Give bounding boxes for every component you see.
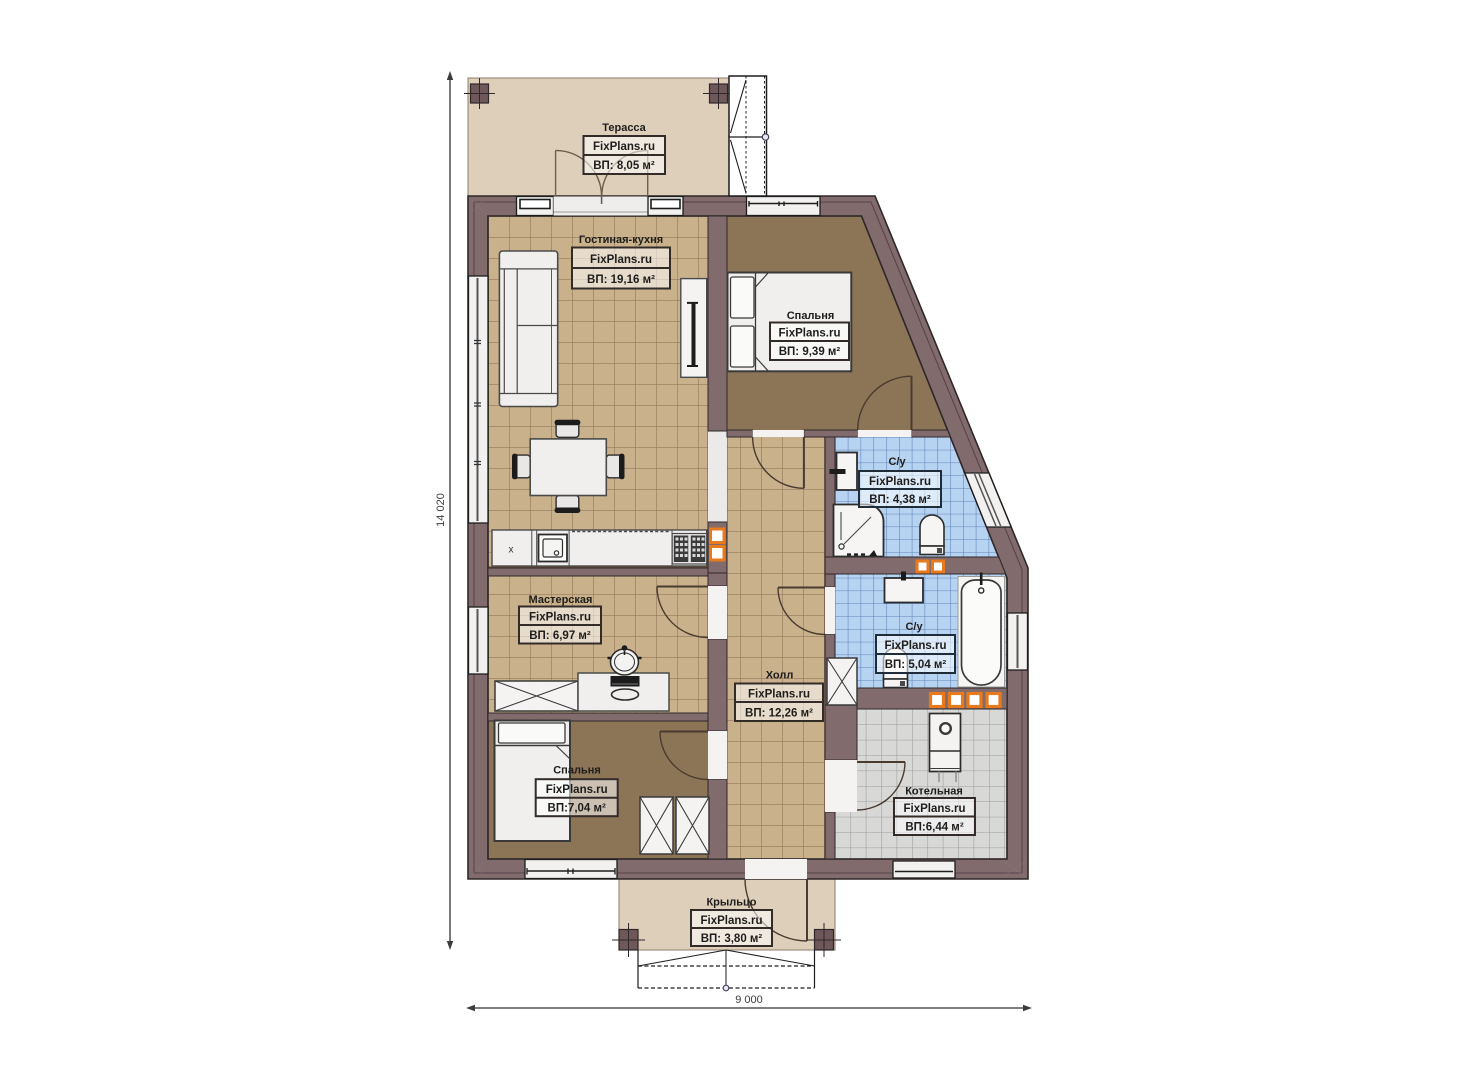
svg-text:FixPlans.ru: FixPlans.ru bbox=[748, 689, 810, 701]
svg-text:FixPlans.ru: FixPlans.ru bbox=[590, 254, 652, 266]
svg-text:FixPlans.ru: FixPlans.ru bbox=[869, 476, 931, 488]
svg-text:FixPlans.ru: FixPlans.ru bbox=[529, 612, 591, 624]
svg-text:С/у: С/у bbox=[888, 456, 906, 468]
svg-text:ВП: 5,04 м²: ВП: 5,04 м² bbox=[885, 659, 947, 671]
svg-text:Гостиная-кухня: Гостиная-кухня bbox=[579, 234, 663, 246]
svg-text:Терасса: Терасса bbox=[602, 122, 646, 134]
svg-text:ВП:6,44 м²: ВП:6,44 м² bbox=[905, 822, 963, 834]
svg-text:FixPlans.ru: FixPlans.ru bbox=[885, 640, 947, 652]
svg-text:ВП: 6,97 м²: ВП: 6,97 м² bbox=[529, 630, 591, 642]
svg-text:Спальня: Спальня bbox=[787, 310, 835, 322]
svg-text:С/у: С/у bbox=[905, 621, 923, 633]
svg-text:x: x bbox=[509, 545, 514, 556]
svg-text:ВП: 12,26 м²: ВП: 12,26 м² bbox=[745, 708, 813, 720]
svg-text:ВП: 4,38 м²: ВП: 4,38 м² bbox=[869, 494, 931, 506]
svg-text:FixPlans.ru: FixPlans.ru bbox=[779, 328, 841, 340]
svg-text:FixPlans.ru: FixPlans.ru bbox=[546, 784, 608, 796]
svg-text:Холл: Холл bbox=[766, 670, 794, 682]
svg-text:ВП: 3,80 м²: ВП: 3,80 м² bbox=[701, 933, 763, 945]
svg-text:Крыльцо: Крыльцо bbox=[706, 897, 756, 909]
svg-text:ВП: 8,05 м²: ВП: 8,05 м² bbox=[593, 160, 655, 172]
svg-text:FixPlans.ru: FixPlans.ru bbox=[701, 915, 763, 927]
svg-text:FixPlans.ru: FixPlans.ru bbox=[593, 141, 655, 153]
svg-text:FixPlans.ru: FixPlans.ru bbox=[904, 803, 966, 815]
svg-text:Спальня: Спальня bbox=[553, 765, 601, 777]
svg-text:Мастерская: Мастерская bbox=[529, 594, 593, 606]
svg-text:9 000: 9 000 bbox=[735, 994, 763, 1006]
svg-text:14 020: 14 020 bbox=[435, 493, 447, 527]
svg-text:ВП:7,04 м²: ВП:7,04 м² bbox=[548, 803, 606, 815]
svg-text:ВП: 19,16 м²: ВП: 19,16 м² bbox=[587, 274, 655, 286]
svg-text:Котельная: Котельная bbox=[905, 786, 963, 798]
svg-text:ВП: 9,39 м²: ВП: 9,39 м² bbox=[779, 346, 841, 358]
